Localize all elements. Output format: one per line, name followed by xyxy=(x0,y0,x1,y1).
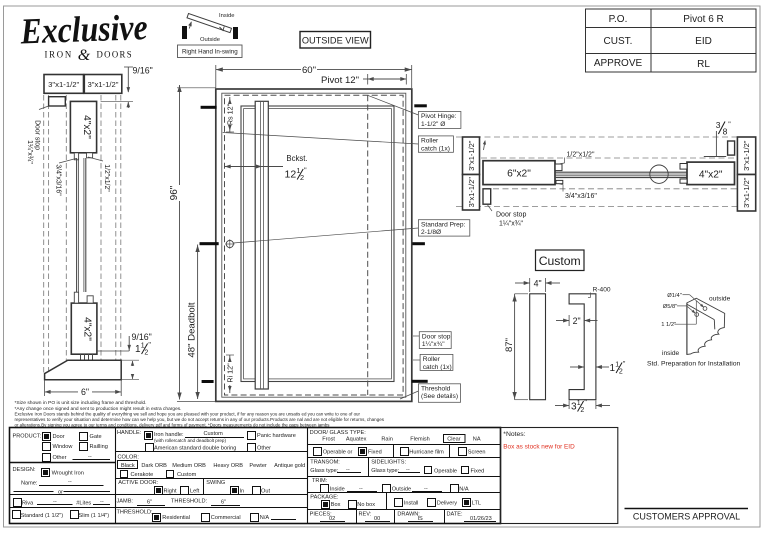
svg-text:ACTIVE DOOR:: ACTIVE DOOR: xyxy=(118,480,159,486)
svg-text:Window: Window xyxy=(53,444,74,450)
svg-text:JAMB:: JAMB: xyxy=(117,499,134,505)
svg-text:Antique gold: Antique gold xyxy=(274,463,305,469)
svg-text:LTL: LTL xyxy=(472,501,481,507)
svg-text:Right Hand In-swing: Right Hand In-swing xyxy=(182,49,238,56)
svg-text:01/26/23: 01/26/23 xyxy=(470,516,492,522)
svg-text:NA: NA xyxy=(473,437,481,443)
svg-text:6": 6" xyxy=(81,387,89,397)
svg-text:OUTSIDE VIEW: OUTSIDE VIEW xyxy=(302,36,369,46)
svg-text:Standard (1 1/2"): Standard (1 1/2") xyxy=(21,513,64,519)
svg-text:Name:: Name: xyxy=(21,480,38,486)
svg-text:*Any change once signed and se: *Any change once signed and sent to prod… xyxy=(15,406,182,411)
svg-text:1¼"x¾": 1¼"x¾" xyxy=(499,220,524,227)
svg-text:--: -- xyxy=(359,486,363,492)
svg-text:60": 60" xyxy=(302,65,316,76)
svg-text:Operable: Operable xyxy=(434,468,457,474)
svg-text:In: In xyxy=(240,489,245,495)
svg-text:Railling: Railling xyxy=(90,444,108,450)
svg-text:Commercial: Commercial xyxy=(211,515,241,521)
svg-text:1¼"x¾": 1¼"x¾" xyxy=(422,341,445,348)
svg-text:Panic hardware: Panic hardware xyxy=(257,433,296,439)
svg-text:": " xyxy=(148,342,151,349)
svg-text:4"x2": 4"x2" xyxy=(82,317,93,341)
svg-text:inside: inside xyxy=(662,350,680,357)
svg-text:PRODUCT:: PRODUCT: xyxy=(13,433,42,439)
svg-text:Residential: Residential xyxy=(162,515,190,521)
svg-text:4"x2": 4"x2" xyxy=(699,169,723,180)
svg-text:02: 02 xyxy=(329,516,335,522)
svg-text:DOORS: DOORS xyxy=(97,49,134,59)
svg-text:*Notes:: *Notes: xyxy=(503,431,525,438)
svg-text:CUSTOMERS APPROVAL: CUSTOMERS APPROVAL xyxy=(633,512,740,522)
svg-text:--: -- xyxy=(53,498,57,504)
svg-text:": " xyxy=(304,166,307,175)
svg-text:Fixed: Fixed xyxy=(471,468,485,474)
svg-text:No box: No box xyxy=(357,502,375,508)
svg-text:Door stop: Door stop xyxy=(34,120,41,150)
svg-text:PACKAGE:: PACKAGE: xyxy=(310,495,339,501)
svg-text:(with rollercatch and deadbolt: (with rollercatch and deadbolt prep) xyxy=(154,438,226,443)
svg-text:RL: RL xyxy=(697,59,710,70)
svg-text:9/16": 9/16" xyxy=(133,66,153,76)
svg-text:12: 12 xyxy=(285,169,297,181)
svg-text:IS: IS xyxy=(418,516,424,522)
svg-text:Custom: Custom xyxy=(204,431,224,437)
svg-text:THRESHOLD:: THRESHOLD: xyxy=(171,499,207,505)
svg-text:3/4"x3/16": 3/4"x3/16" xyxy=(565,193,597,200)
svg-text:TRANSOM:: TRANSOM: xyxy=(310,460,340,466)
svg-text:Std. Preparation for Installat: Std. Preparation for Installation xyxy=(647,361,741,368)
svg-text:SIDELIGHTS:: SIDELIGHTS: xyxy=(371,460,406,466)
svg-text:Exclusive Iron Doors stands be: Exclusive Iron Doors stands behind the q… xyxy=(15,411,361,416)
svg-text:3"x1-1/2": 3"x1-1/2" xyxy=(742,140,751,171)
svg-text:00: 00 xyxy=(374,516,380,522)
svg-text:2-1/8Ø: 2-1/8Ø xyxy=(421,229,441,236)
svg-text:N/A: N/A xyxy=(459,487,469,493)
svg-text:DOOR/ GLASS TYPE:: DOOR/ GLASS TYPE: xyxy=(310,430,367,436)
svg-text:Ø1/4": Ø1/4" xyxy=(667,293,682,299)
svg-text:6": 6" xyxy=(147,500,152,506)
svg-text:3/4"x3/16": 3/4"x3/16" xyxy=(55,164,62,196)
svg-text:6": 6" xyxy=(221,500,226,506)
svg-text:1 1/2": 1 1/2" xyxy=(661,322,676,328)
svg-text:--: -- xyxy=(346,467,350,473)
svg-text:Flemish: Flemish xyxy=(410,437,430,443)
svg-text:HANDLE:: HANDLE: xyxy=(117,430,142,436)
svg-text:1/2"x1/2": 1/2"x1/2" xyxy=(103,164,110,192)
svg-text:American standard double borin: American standard double boring xyxy=(154,445,236,451)
svg-text:4": 4" xyxy=(534,278,542,288)
svg-text:--: -- xyxy=(424,486,428,492)
svg-text:Hurricane film: Hurricane film xyxy=(409,450,444,456)
svg-text:2": 2" xyxy=(573,316,581,326)
svg-text:COLOR:: COLOR: xyxy=(118,455,140,461)
svg-text:Box as stock new for EID: Box as stock new for EID xyxy=(503,444,575,451)
svg-text:Glass type:: Glass type: xyxy=(371,468,399,474)
svg-text:Pewter: Pewter xyxy=(249,463,267,469)
svg-text:2: 2 xyxy=(619,369,623,376)
svg-text:DATE:: DATE: xyxy=(447,512,464,518)
svg-text:N/A: N/A xyxy=(260,515,270,521)
svg-text:APPROVE: APPROVE xyxy=(594,58,643,69)
svg-text:Fixed: Fixed xyxy=(368,450,382,456)
svg-text:Inside: Inside xyxy=(219,13,234,19)
svg-text:THRESHOLD:: THRESHOLD: xyxy=(117,510,153,516)
svg-text:3"x1-1/2": 3"x1-1/2" xyxy=(48,80,79,89)
svg-text:Outside: Outside xyxy=(392,487,411,493)
svg-text:3"x1-1/2": 3"x1-1/2" xyxy=(87,80,118,89)
svg-text:(See details): (See details) xyxy=(421,393,458,400)
svg-text:Screen: Screen xyxy=(468,450,486,456)
svg-text:": " xyxy=(623,361,626,368)
svg-text:catch (1x): catch (1x) xyxy=(423,364,452,371)
svg-text:Black: Black xyxy=(121,463,135,469)
svg-text:Pivot 6 R: Pivot 6 R xyxy=(683,14,724,25)
svg-text:Aquatex: Aquatex xyxy=(346,437,367,443)
svg-text:Door stop: Door stop xyxy=(496,212,526,219)
svg-text:3"x1-1/2": 3"x1-1/2" xyxy=(467,140,476,171)
svg-text:Roller: Roller xyxy=(423,356,441,363)
svg-text:Other: Other xyxy=(257,445,271,451)
svg-text:Box: Box xyxy=(331,502,341,508)
svg-text:REV:: REV: xyxy=(359,512,372,518)
svg-text:96": 96" xyxy=(169,185,180,200)
svg-text:Slim (1 1/4"): Slim (1 1/4") xyxy=(79,513,110,519)
svg-text:Riva: Riva xyxy=(22,500,34,506)
svg-text:Pivot 12": Pivot 12" xyxy=(321,75,359,86)
svg-text:Clear: Clear xyxy=(447,436,461,442)
svg-text:87": 87" xyxy=(504,338,515,352)
svg-text:Operable or: Operable or xyxy=(323,450,353,456)
svg-text:Glass type:: Glass type: xyxy=(310,468,338,474)
svg-text:SWING: SWING xyxy=(206,480,225,486)
svg-text:Ri 12": Ri 12" xyxy=(225,363,234,383)
svg-text:Outside: Outside xyxy=(200,37,220,43)
svg-text:Roller: Roller xyxy=(421,138,439,145)
svg-text:2: 2 xyxy=(144,350,148,357)
svg-text:6"x2": 6"x2" xyxy=(507,169,531,180)
svg-text:Other: Other xyxy=(53,455,67,461)
svg-text:Standard Prep:: Standard Prep: xyxy=(421,221,466,228)
svg-text:Heavy ORB: Heavy ORB xyxy=(213,463,243,469)
svg-text:Custom: Custom xyxy=(539,254,581,268)
svg-text:Exclusive: Exclusive xyxy=(19,6,148,51)
svg-text:representatives to verify your: representatives to verify your situation… xyxy=(15,417,385,422)
svg-text:Door: Door xyxy=(53,434,65,440)
svg-text:EID: EID xyxy=(695,36,712,47)
svg-text:Right: Right xyxy=(164,489,178,495)
svg-text:Ø5/8": Ø5/8" xyxy=(663,304,678,310)
svg-text:R-400: R-400 xyxy=(593,287,611,294)
svg-text:1¼"x¾": 1¼"x¾" xyxy=(26,140,33,164)
svg-text:3"x1-1/2": 3"x1-1/2" xyxy=(467,177,476,208)
svg-text:outside: outside xyxy=(709,296,731,303)
svg-text:1/2"x1/2": 1/2"x1/2" xyxy=(567,151,595,158)
svg-text:Wrought Iron: Wrought Iron xyxy=(52,471,84,477)
svg-text:1-1/2" Ø: 1-1/2" Ø xyxy=(421,121,445,128)
svg-text:catch (1x): catch (1x) xyxy=(421,145,450,152)
svg-text:": " xyxy=(728,122,731,129)
svg-text:Custom: Custom xyxy=(177,472,197,478)
svg-text:9/16": 9/16" xyxy=(132,332,152,342)
svg-text:Pivot Hinge:: Pivot Hinge: xyxy=(421,113,457,120)
svg-text:Install: Install xyxy=(404,501,419,507)
svg-text:DESIGN:: DESIGN: xyxy=(13,467,36,473)
svg-text:Inside: Inside xyxy=(330,487,345,493)
svg-text:#Lites: #Lites xyxy=(76,500,91,506)
svg-text:Gate: Gate xyxy=(90,434,102,440)
svg-text:TRIM:: TRIM: xyxy=(312,478,328,484)
svg-text:*Size shown in PO is unit size: *Size shown in PO is unit size including… xyxy=(15,400,147,405)
svg-text:Bckst.: Bckst. xyxy=(286,154,307,163)
svg-text:CUST.: CUST. xyxy=(604,36,633,47)
svg-text:Delivery: Delivery xyxy=(437,501,457,507)
svg-text:IRON: IRON xyxy=(45,49,74,59)
svg-text:Medium ORB: Medium ORB xyxy=(172,463,206,469)
svg-text:2: 2 xyxy=(580,407,584,414)
svg-text:": " xyxy=(584,400,587,407)
svg-text:3: 3 xyxy=(716,120,721,130)
svg-text:&: & xyxy=(78,47,91,64)
svg-text:Rain: Rain xyxy=(381,437,393,443)
svg-text:4"x2": 4"x2" xyxy=(81,115,92,139)
svg-text:--: -- xyxy=(406,467,410,473)
svg-text:P.O.: P.O. xyxy=(609,14,628,25)
svg-text:Frost: Frost xyxy=(322,437,335,443)
svg-text:Rs 12": Rs 12" xyxy=(225,103,234,125)
svg-text:Door stop: Door stop xyxy=(422,333,451,340)
svg-text:--: -- xyxy=(100,498,104,504)
svg-text:Out: Out xyxy=(261,489,270,495)
svg-text:8: 8 xyxy=(723,127,728,137)
svg-text:Dark ORB: Dark ORB xyxy=(141,463,167,469)
svg-text:Threshold: Threshold xyxy=(421,385,451,392)
svg-text:48" Deadbolt: 48" Deadbolt xyxy=(187,302,198,357)
svg-text:3"x1-1/2": 3"x1-1/2" xyxy=(742,177,751,208)
svg-text:Cerakote: Cerakote xyxy=(131,472,154,478)
svg-text:Left: Left xyxy=(190,489,200,495)
svg-text:--: -- xyxy=(68,479,72,485)
svg-text:--: -- xyxy=(88,454,92,460)
